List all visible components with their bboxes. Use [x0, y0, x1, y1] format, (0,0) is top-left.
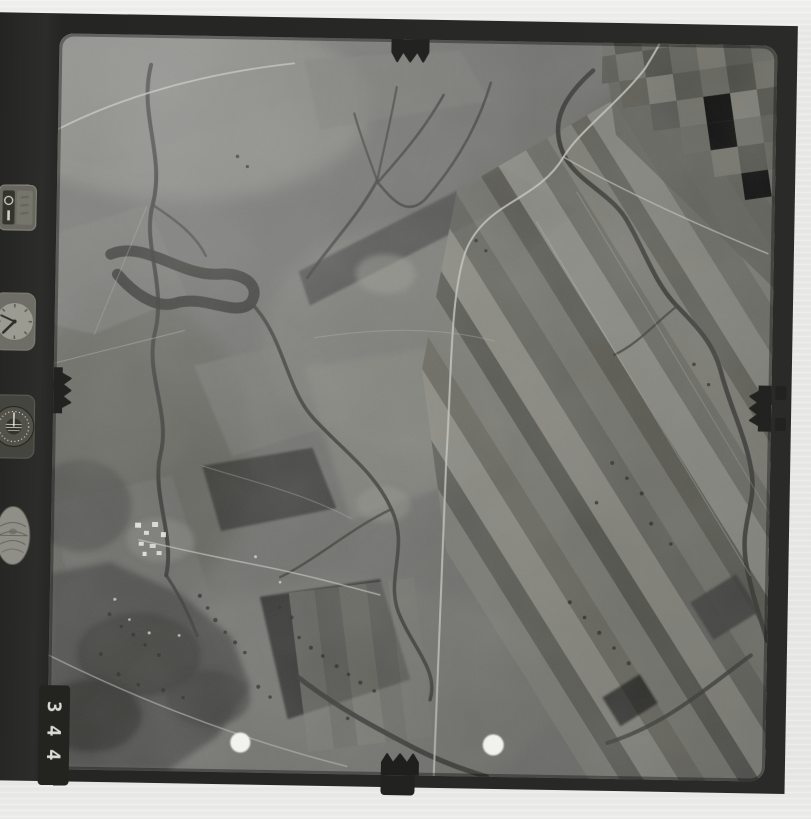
scanned-film-frame: 3 4 4	[0, 0, 811, 819]
film-frame: 3 4 4	[0, 12, 798, 794]
clock-dial	[0, 292, 36, 355]
fiducial-top-icon	[391, 37, 430, 68]
fiducial-left-icon	[49, 367, 76, 413]
frame-number-digit: 4	[43, 749, 62, 761]
fiducial-bottom-icon	[381, 747, 420, 778]
fiducial-right-icon	[745, 385, 772, 431]
film-edge-notch-icon	[775, 386, 786, 400]
terrain-svg	[47, 33, 778, 781]
frame-number: 3 4 4	[41, 697, 66, 764]
frame-number-digit: 4	[44, 725, 63, 737]
frame-number-digit: 3	[44, 701, 63, 713]
aerial-photo	[47, 33, 778, 781]
film-edge-notch-icon	[775, 418, 786, 431]
altimeter-dial	[0, 394, 35, 463]
level-bubble-dial	[0, 504, 32, 571]
film-data-strip	[0, 184, 37, 235]
